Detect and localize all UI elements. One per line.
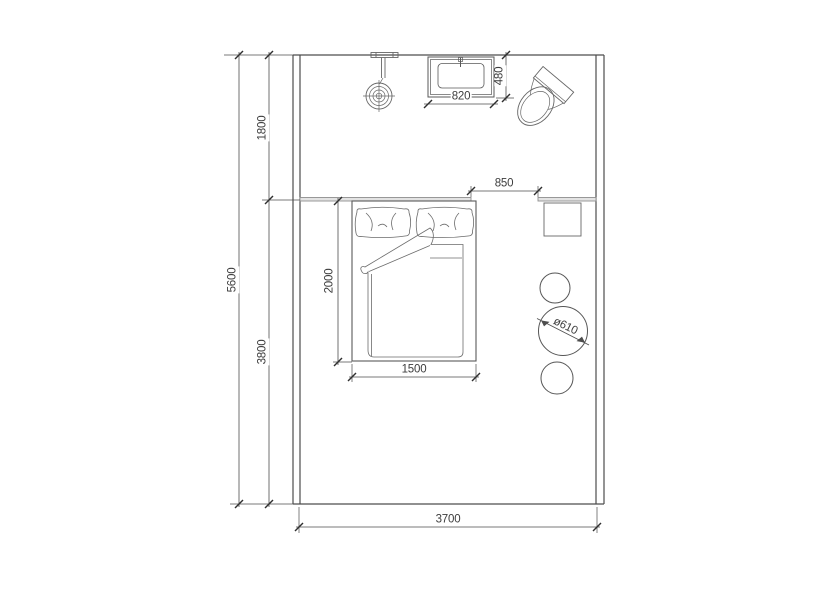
stool-circles [539, 273, 588, 394]
dim-bed-zone-depth: 3800 [257, 339, 269, 366]
floor-plan-canvas: 5600 1800 3800 3700 820 480 850 2000 150… [0, 0, 837, 592]
side-table [544, 203, 581, 236]
floor-plan-drawing [0, 0, 837, 592]
bed [352, 201, 476, 361]
room-walls [293, 55, 604, 504]
dim-basin-width: 820 [451, 91, 472, 103]
dimension-ticks [235, 51, 601, 531]
dim-room-width: 3700 [435, 514, 462, 526]
stool-small-bottom [541, 362, 573, 394]
toilet [507, 66, 574, 135]
dim-bath-zone-depth: 1800 [257, 115, 269, 142]
dim-bed-width: 1500 [401, 364, 428, 376]
duvet [361, 228, 463, 357]
dim-total-depth: 5600 [227, 267, 239, 294]
pillow-left [355, 207, 410, 237]
shower-head [363, 53, 398, 113]
dim-opening-width: 850 [494, 178, 515, 190]
dim-basin-depth: 480 [494, 66, 506, 87]
dimension-lines [224, 52, 600, 533]
pillow-right [416, 207, 473, 237]
dim-bed-length: 2000 [324, 268, 336, 295]
stool-small-top [540, 273, 570, 303]
